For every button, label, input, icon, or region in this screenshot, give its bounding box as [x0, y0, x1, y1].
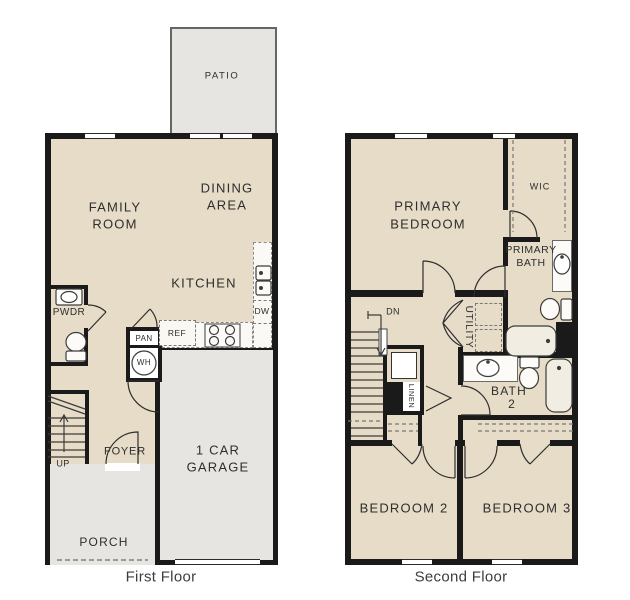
bedroom2-closet-rod: [388, 424, 418, 431]
primary-toilet-tank: [561, 299, 572, 320]
primary-bath-label-line2: BATH: [516, 258, 545, 269]
family-room-label-line1: FAMILY: [89, 201, 141, 214]
pwdr-toilet-bowl: [66, 333, 86, 352]
bedroom3-closet-door: [520, 444, 550, 464]
primary-toilet-bowl: [541, 299, 560, 320]
garage-label-line1: 1 CAR: [196, 444, 240, 457]
second-floor-caption: Second Floor: [415, 569, 508, 586]
primary-bath-label-line1: PRIMARY: [505, 245, 556, 256]
porch-label: PORCH: [79, 536, 128, 548]
bath2-label-line1: BATH: [491, 385, 527, 397]
kitchen-sink-basin-1: [256, 266, 271, 280]
up-label: UP: [56, 460, 69, 469]
bedroom2-label: BEDROOM 2: [360, 502, 449, 515]
kitchen-label: KITCHEN: [171, 277, 236, 290]
primary-bedroom-door-arc: [423, 261, 455, 293]
pwdr-label: PWDR: [53, 308, 86, 318]
wic-door-arc: [510, 211, 537, 238]
bedroom2-door-arc: [423, 446, 455, 478]
pantry-door-arc: [131, 309, 157, 329]
bedroom3-closet-rod: [478, 424, 573, 431]
fixtures-first-floor: [56, 266, 271, 375]
family-room-label-line2: ROOM: [92, 218, 137, 231]
linen-door: [426, 386, 451, 411]
stairs-first-floor: [48, 396, 85, 457]
bedroom3-label: BEDROOM 3: [483, 502, 572, 515]
garage-entry-door-arc: [128, 381, 159, 412]
primary-bath-door-arc: [474, 266, 505, 297]
kitchen-sink-basin-2: [256, 281, 271, 295]
bedroom2-closet-door: [392, 444, 422, 464]
doors-first-floor: [88, 305, 159, 464]
pantry-label: PAN: [135, 335, 152, 343]
utility-bifold-doors: [443, 300, 463, 347]
dining-area-label-line1: DINING: [201, 182, 254, 195]
pwdr-toilet-tank: [66, 351, 86, 361]
garage-label-line2: GARAGE: [187, 461, 250, 474]
refrigerator-label: REF: [168, 329, 186, 338]
dining-area-label-line2: AREA: [207, 199, 247, 212]
foyer-label: FOYER: [104, 447, 146, 458]
bedroom3-door-arc: [465, 446, 497, 478]
dishwasher-label: DW: [255, 307, 270, 316]
water-heater-label: WH: [137, 359, 151, 367]
bath2-door-arc: [461, 386, 490, 415]
dn-label: DN: [386, 308, 400, 317]
primary-bedroom-label-line1: PRIMARY: [394, 200, 461, 213]
patio-label: PATIO: [205, 71, 240, 81]
floorplan: PATIO FAMILY ROOM DINING AREA KITCHEN PW…: [0, 0, 630, 600]
linen-label: LINEN: [407, 384, 415, 409]
bath2-label-line2: 2: [508, 398, 516, 410]
utility-label: UTILITY: [463, 306, 473, 349]
stairs-second-floor: [348, 311, 387, 436]
bath2-toilet-tank: [520, 357, 539, 368]
pwdr-door-arc: [88, 305, 106, 331]
primary-bedroom-label-line2: BEDROOM: [390, 218, 466, 231]
first-floor-caption: First Floor: [126, 569, 197, 586]
wic-label: WIC: [530, 183, 551, 192]
